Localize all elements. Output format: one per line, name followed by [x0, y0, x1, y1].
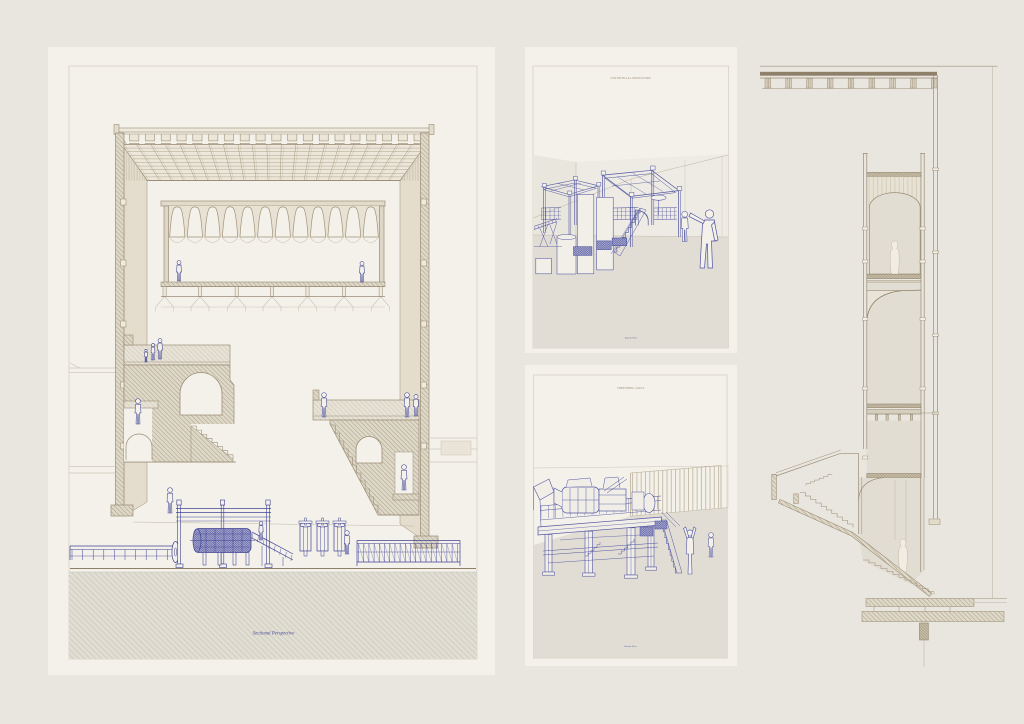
svg-text:CENTRIFUGAL REPOSITORY: CENTRIFUGAL REPOSITORY [611, 77, 652, 80]
svg-text:Interior View: Interior View [625, 337, 638, 339]
svg-text:Sectional Perspective: Sectional Perspective [253, 632, 295, 637]
svg-text:THRESHING VAULT: THRESHING VAULT [617, 387, 645, 390]
svg-text:Interior View: Interior View [624, 646, 637, 648]
